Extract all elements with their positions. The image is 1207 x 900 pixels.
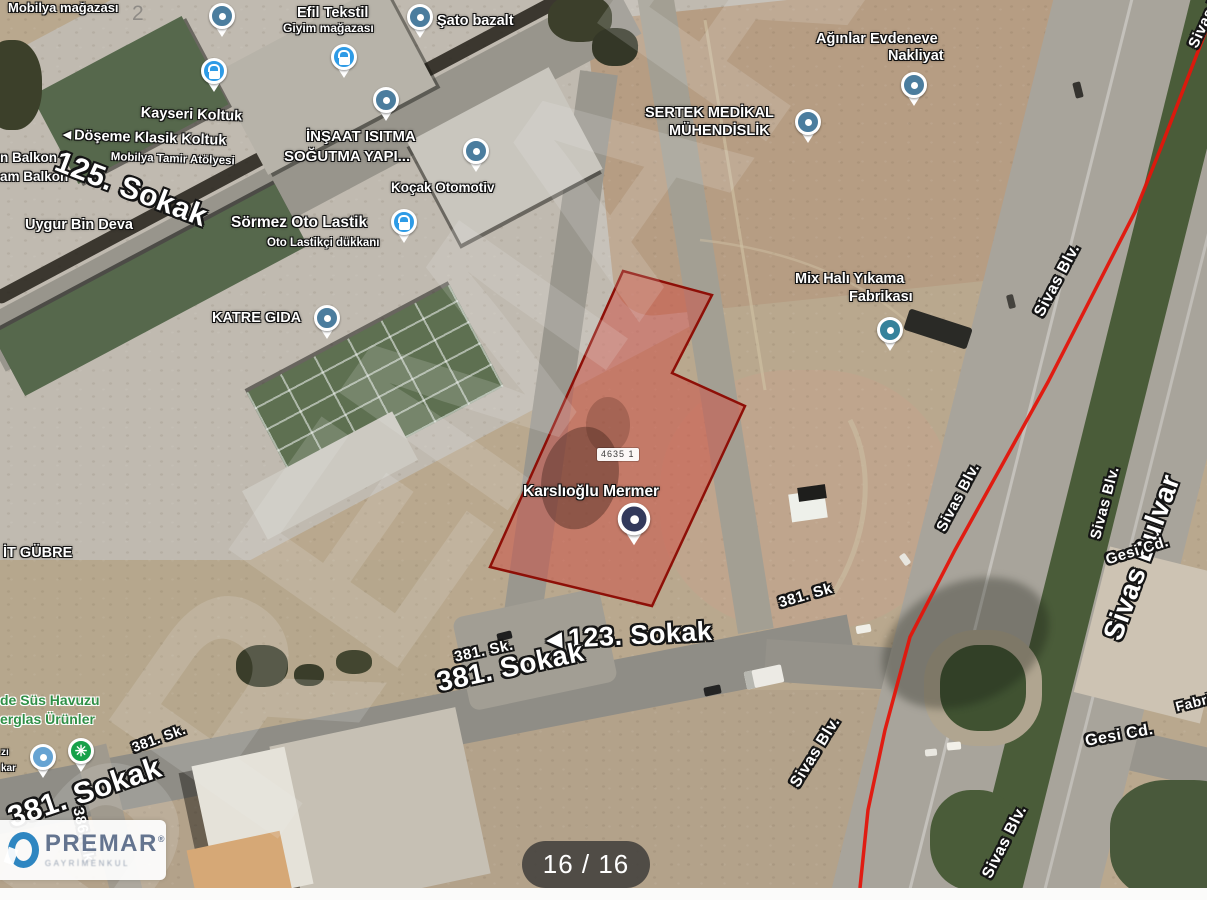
label-sus-havuzu: de Süs Havuzu [0, 693, 100, 708]
label-mix-hali-1: Mix Halı Yıkama [795, 272, 904, 287]
label-it-gubre: İT GÜBRE [3, 546, 72, 561]
satellite-map-image[interactable]: PREMAR Mobilya mağazası2Efil TekstilGiyi… [0, 0, 1207, 888]
bottom-strip [0, 888, 1207, 900]
label-sormez-oto: Sörmez Oto Lastik [231, 215, 367, 231]
label-sato-bazalt: Şato bazalt [437, 14, 514, 29]
premar-logo: PREMAR® GAYRİMENKUL [0, 820, 166, 880]
label-sertek-1: SERTEK MEDİKAL [645, 106, 774, 121]
premar-brand-text: PREMAR® [45, 832, 166, 856]
recycle-flower-icon: ✳ [68, 738, 94, 764]
label-aginlar-2: Nakliyat [888, 49, 944, 64]
label-sertek-2: MÜHENDİSLİK [669, 124, 770, 139]
premar-sub-text: GAYRİMENKUL [45, 859, 166, 868]
label-aginlar-1: Ağınlar Evdeneve [816, 32, 938, 47]
label-kocak-otomotiv: Koçak Otomotiv [391, 181, 495, 195]
lock-icon [331, 44, 357, 70]
label-oto-lastikci: Oto Lastikçi dükkanı [267, 237, 379, 249]
registered-mark: ® [158, 834, 166, 844]
label-insaat-isitma: İNŞAAT ISITMA [306, 129, 416, 145]
label-watermark-digit: 2 [132, 3, 144, 25]
gallery-photo-counter: 16 / 16 [522, 841, 650, 888]
label-fiberglas: erglas Ürünler [0, 712, 95, 727]
label-parcel-number: 4635 1 [597, 448, 639, 461]
label-katre-gida: KATRE GIDA [212, 311, 301, 326]
premar-logo-icon [8, 832, 39, 868]
listing-gallery: PREMAR Mobilya mağazası2Efil TekstilGiyi… [0, 0, 1207, 900]
label-cut-kar: kar [1, 764, 16, 775]
label-efil-tekstil: Efil Tekstil [297, 6, 368, 21]
lock-icon [201, 58, 227, 84]
label-uygur-bin-deva: Uygur Bin Deva [25, 218, 133, 233]
label-karslioglu: Karslıoğlu Mermer [523, 484, 659, 500]
label-mix-hali-2: Fabrikası [849, 290, 913, 305]
label-mobilya-magazasi: Mobilya mağazası [8, 1, 119, 15]
label-efil-sub: Giyim mağazası [283, 22, 374, 35]
red-route-line [860, 28, 1207, 888]
lock-icon [391, 209, 417, 235]
label-sogutma-yapi: SOĞUTMA YAPI... [284, 149, 410, 165]
label-cut-zi: zı [1, 748, 9, 759]
